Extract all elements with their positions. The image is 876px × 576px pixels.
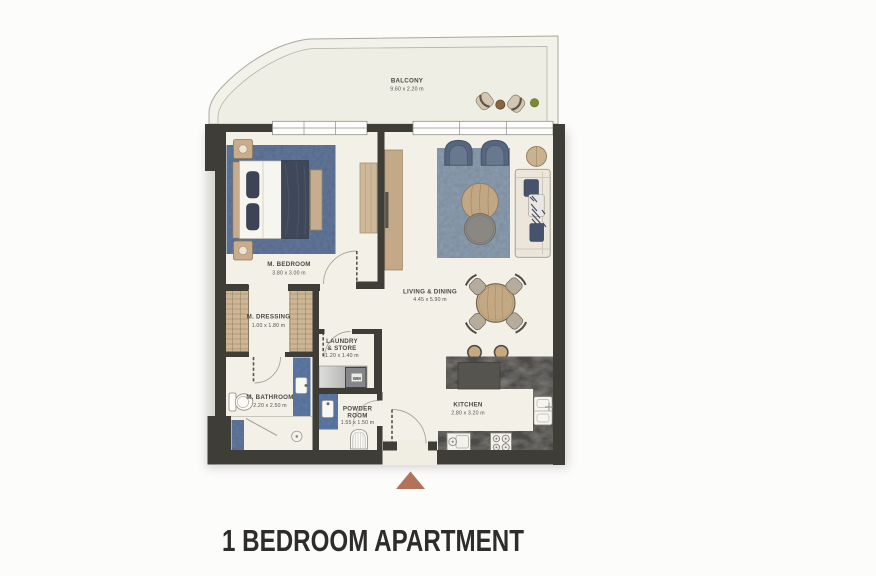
- svg-text:ROOM: ROOM: [347, 413, 367, 420]
- svg-text:9.60 x 2.20 m: 9.60 x 2.20 m: [390, 87, 423, 93]
- svg-text:M. BEDROOM: M. BEDROOM: [267, 261, 310, 268]
- svg-text:LIVING & DINING: LIVING & DINING: [403, 289, 457, 296]
- svg-text:1 BEDROOM APARTMENT: 1 BEDROOM APARTMENT: [222, 523, 524, 558]
- svg-text:2.20 x 2.50 m: 2.20 x 2.50 m: [253, 403, 286, 409]
- svg-text:WM: WM: [353, 376, 361, 381]
- svg-text:BALCONY: BALCONY: [391, 78, 424, 85]
- svg-text:POWDER: POWDER: [343, 406, 373, 413]
- svg-text:1.00 x 1.80 m: 1.00 x 1.80 m: [252, 323, 285, 329]
- svg-text:2.80 x 3.20 m: 2.80 x 3.20 m: [451, 411, 484, 417]
- svg-text:1.55 x 1.50 m: 1.55 x 1.50 m: [341, 420, 374, 426]
- svg-text:3.80 x 3.00 m: 3.80 x 3.00 m: [272, 271, 305, 277]
- svg-text:1.20 x 1.40 m: 1.20 x 1.40 m: [325, 353, 358, 359]
- svg-text:& STORE: & STORE: [327, 345, 356, 352]
- svg-text:4.45 x 5.90 m: 4.45 x 5.90 m: [413, 297, 446, 303]
- svg-text:LAUNDRY: LAUNDRY: [326, 338, 358, 345]
- svg-text:KITCHEN: KITCHEN: [453, 402, 483, 409]
- svg-text:M. BATHROOM: M. BATHROOM: [246, 394, 293, 401]
- svg-text:M. DRESSING: M. DRESSING: [247, 314, 291, 321]
